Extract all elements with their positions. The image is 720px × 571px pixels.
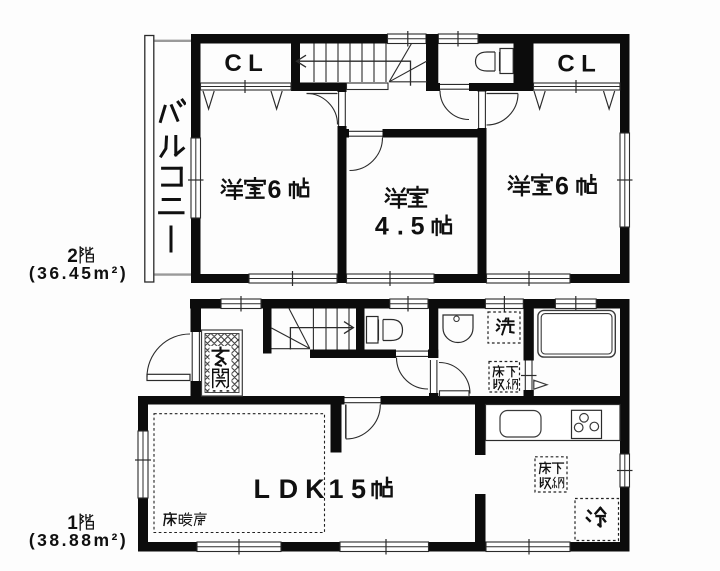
svg-text:5: 5	[351, 474, 366, 504]
svg-text:L: L	[581, 51, 596, 78]
svg-text:1: 1	[328, 474, 343, 504]
svg-text:.: .	[397, 213, 404, 241]
svg-text:(38.88m²): (38.88m²)	[29, 530, 128, 550]
svg-text:L: L	[254, 474, 271, 504]
svg-text:4: 4	[375, 213, 389, 241]
svg-text:C: C	[557, 51, 574, 78]
svg-text:D: D	[279, 474, 299, 504]
svg-text:L: L	[248, 50, 263, 77]
svg-text:(36.45m²): (36.45m²)	[29, 263, 128, 283]
svg-text:6: 6	[268, 176, 282, 204]
svg-text:C: C	[224, 50, 241, 77]
svg-text:6: 6	[555, 172, 569, 200]
svg-text:K: K	[305, 474, 325, 504]
svg-text:5: 5	[411, 213, 425, 241]
